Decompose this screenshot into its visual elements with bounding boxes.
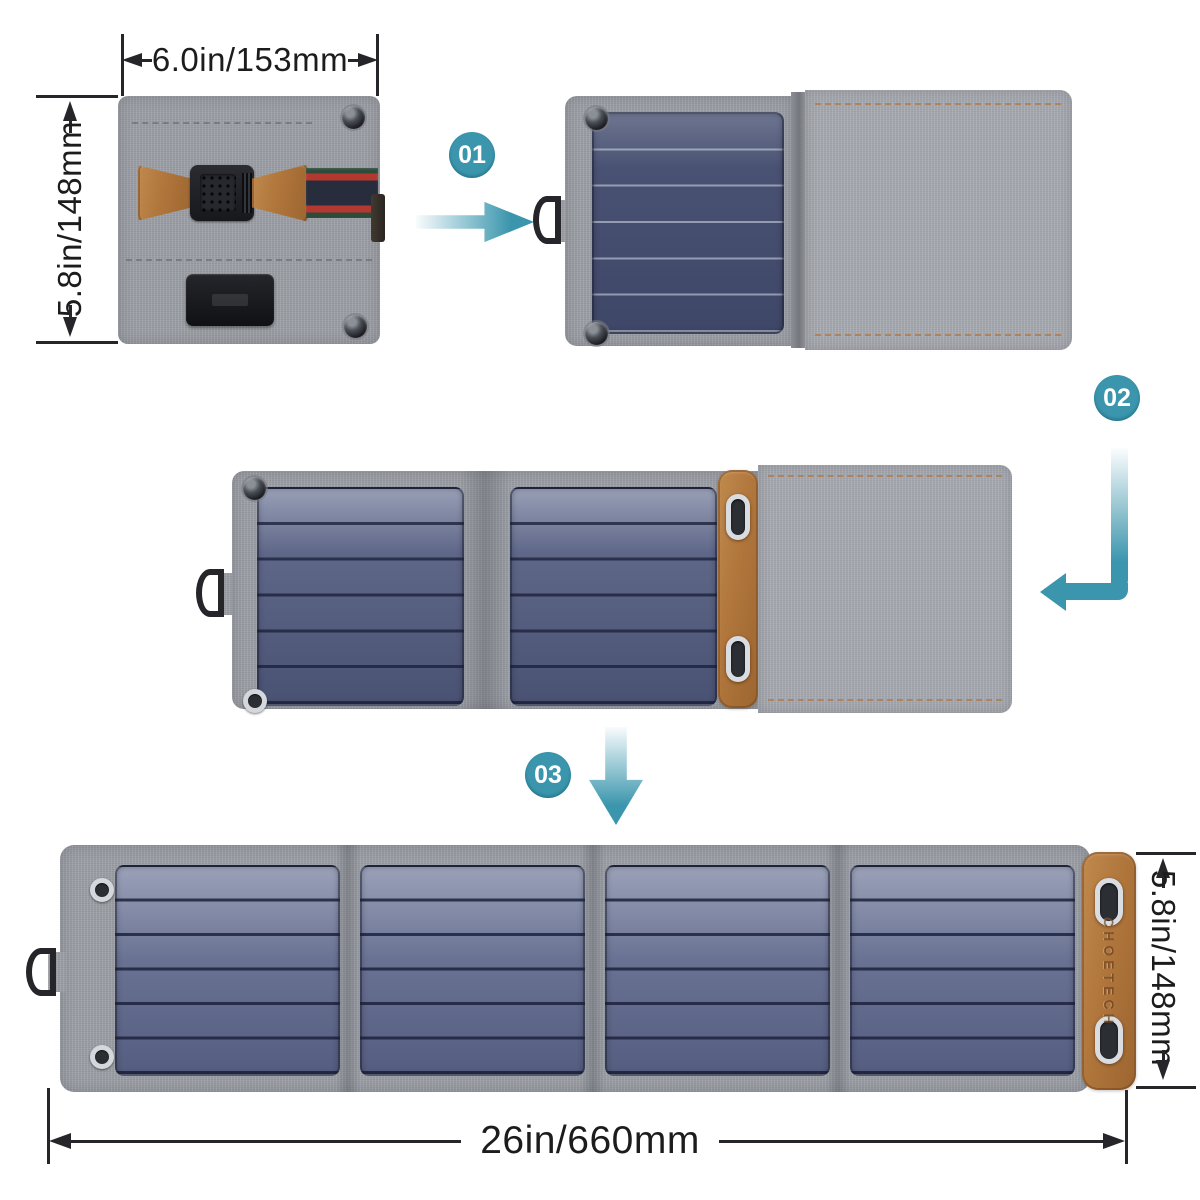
dimension-arrowhead-icon bbox=[1156, 1060, 1170, 1080]
seam-stitch-line bbox=[768, 699, 1002, 701]
leather-wing-right bbox=[252, 163, 308, 223]
solar-panel bbox=[115, 865, 340, 1076]
back-cover-fabric bbox=[758, 465, 1012, 713]
oval-eyelet-icon bbox=[726, 636, 750, 682]
snap-button-icon bbox=[344, 315, 367, 338]
arrow-elbow-head bbox=[1040, 573, 1066, 611]
solar-panel bbox=[592, 112, 784, 334]
fold-shadow bbox=[460, 471, 510, 709]
panel-section-fabric bbox=[565, 96, 793, 346]
dim-left-tick-bottom bbox=[36, 341, 118, 344]
usb-connector-label-area bbox=[212, 294, 248, 306]
arrow-right-icon bbox=[416, 198, 534, 246]
snap-button-icon bbox=[585, 107, 608, 130]
dim-line bbox=[348, 59, 358, 62]
fold-shadow bbox=[581, 845, 605, 1092]
step-badge-01: 01 bbox=[449, 132, 495, 178]
dim-left-tick-top bbox=[36, 95, 118, 98]
photo-four-fold bbox=[60, 845, 1090, 1092]
buckle-ribs bbox=[242, 173, 252, 213]
photo-two-fold bbox=[565, 90, 1072, 350]
dim-line bbox=[1162, 1050, 1165, 1060]
dim-line bbox=[719, 1140, 1103, 1143]
dimension-arrowhead-icon bbox=[122, 53, 142, 67]
dim-top: 6.0in/153mm bbox=[122, 40, 378, 80]
solar-panel bbox=[605, 865, 830, 1076]
step-badge-02: 02 bbox=[1094, 375, 1140, 421]
buckle-pad bbox=[200, 174, 236, 212]
pocket-stitch-line bbox=[132, 122, 312, 124]
solar-panel bbox=[510, 487, 717, 706]
solar-panel bbox=[257, 487, 464, 706]
photo-folded-pouch bbox=[118, 96, 380, 344]
step-badge-03: 03 bbox=[525, 752, 571, 798]
dim-line bbox=[142, 59, 152, 62]
photo-three-fold bbox=[232, 465, 1012, 713]
dim-line bbox=[69, 305, 72, 317]
panel-section-fabric bbox=[60, 845, 1090, 1092]
fold-shadow bbox=[336, 845, 360, 1092]
eyelet-icon bbox=[90, 1045, 114, 1069]
usb-connector bbox=[186, 274, 274, 326]
eyelet-icon bbox=[243, 689, 267, 713]
pocket-stitch-line bbox=[126, 259, 372, 261]
closure-strap bbox=[138, 162, 380, 224]
d-ring-icon bbox=[533, 196, 561, 244]
leather-strap-end: CHOETECH bbox=[1082, 852, 1136, 1090]
seam-stitch-line bbox=[815, 334, 1061, 336]
seam-stitch-line bbox=[815, 103, 1061, 105]
solar-panel bbox=[850, 865, 1075, 1076]
dim-bottom-label: 26in/660mm bbox=[461, 1118, 719, 1164]
snap-button-icon bbox=[585, 322, 608, 345]
seam-stitch-line bbox=[768, 475, 1002, 477]
side-tab bbox=[371, 194, 385, 242]
dim-left-label: 5.8in/148mm bbox=[50, 107, 90, 331]
brand-embossed-text: CHOETECH bbox=[1082, 928, 1136, 1016]
buckle-icon bbox=[190, 165, 254, 221]
oval-eyelet-icon bbox=[726, 494, 750, 540]
dimension-arrowhead-icon bbox=[358, 53, 378, 67]
leather-strap-vertical bbox=[718, 470, 758, 708]
arrow-elbow-vertical bbox=[1111, 448, 1128, 590]
snap-button-icon bbox=[342, 106, 365, 129]
arrow-elbow-icon bbox=[1040, 448, 1128, 600]
dim-top-label: 6.0in/153mm bbox=[152, 41, 348, 79]
back-cover-fabric bbox=[805, 90, 1072, 350]
arrow-elbow-horizontal bbox=[1060, 583, 1128, 600]
arrow-down-icon bbox=[589, 727, 643, 825]
leather-wing-left bbox=[138, 163, 192, 223]
dim-bottom-tick-left bbox=[47, 1088, 50, 1164]
dim-bottom-tick-right bbox=[1125, 1090, 1128, 1164]
dim-line bbox=[71, 1140, 461, 1143]
product-diagram: 6.0in/153mm 5.8in/148mm 01 bbox=[0, 0, 1200, 1200]
d-ring-icon bbox=[196, 569, 224, 617]
fold-shadow bbox=[826, 845, 850, 1092]
panel-section-fabric bbox=[232, 471, 759, 709]
snap-button-icon bbox=[243, 477, 266, 500]
dimension-arrowhead-icon bbox=[49, 1133, 71, 1149]
elastic-webbing bbox=[306, 168, 378, 218]
dimension-arrowhead-icon bbox=[63, 317, 77, 337]
dimension-arrowhead-icon bbox=[1103, 1133, 1125, 1149]
eyelet-icon bbox=[90, 878, 114, 902]
solar-panel bbox=[360, 865, 585, 1076]
d-ring-icon bbox=[26, 948, 56, 996]
